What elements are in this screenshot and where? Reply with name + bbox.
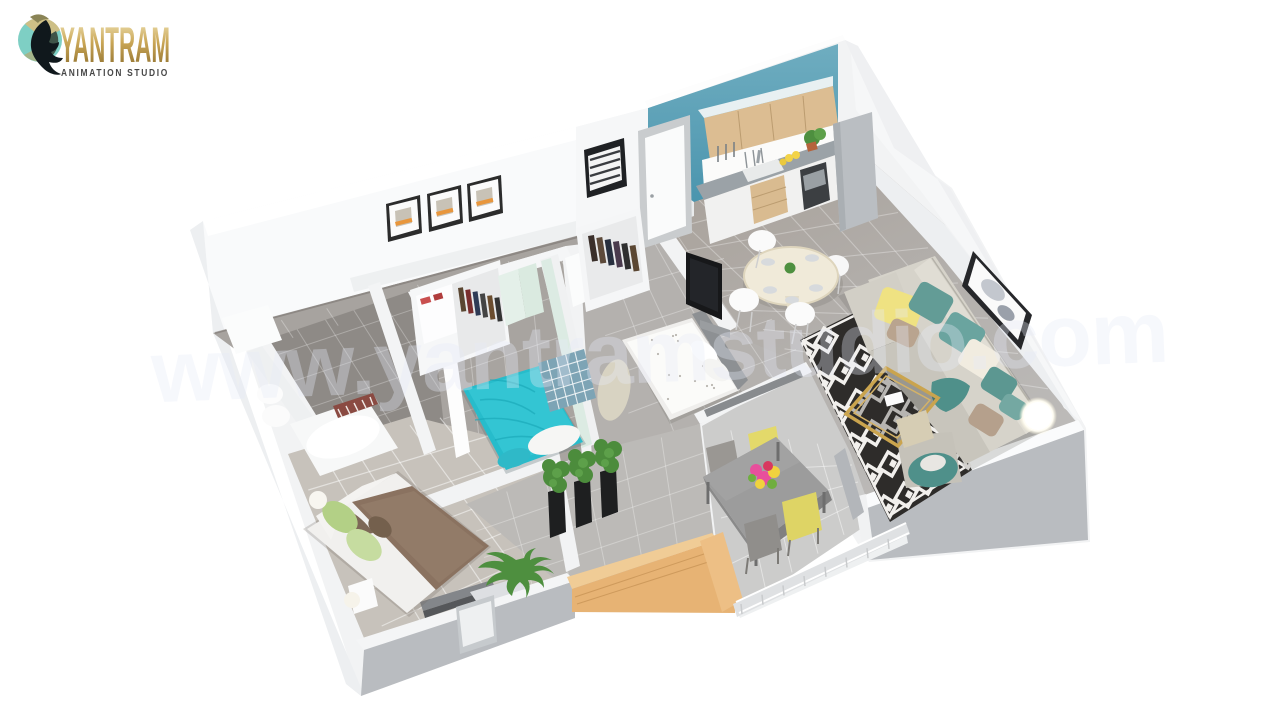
svg-text:ANIMATION STUDIO: ANIMATION STUDIO bbox=[61, 68, 169, 79]
svg-text:YANTRAM: YANTRAM bbox=[60, 17, 170, 73]
